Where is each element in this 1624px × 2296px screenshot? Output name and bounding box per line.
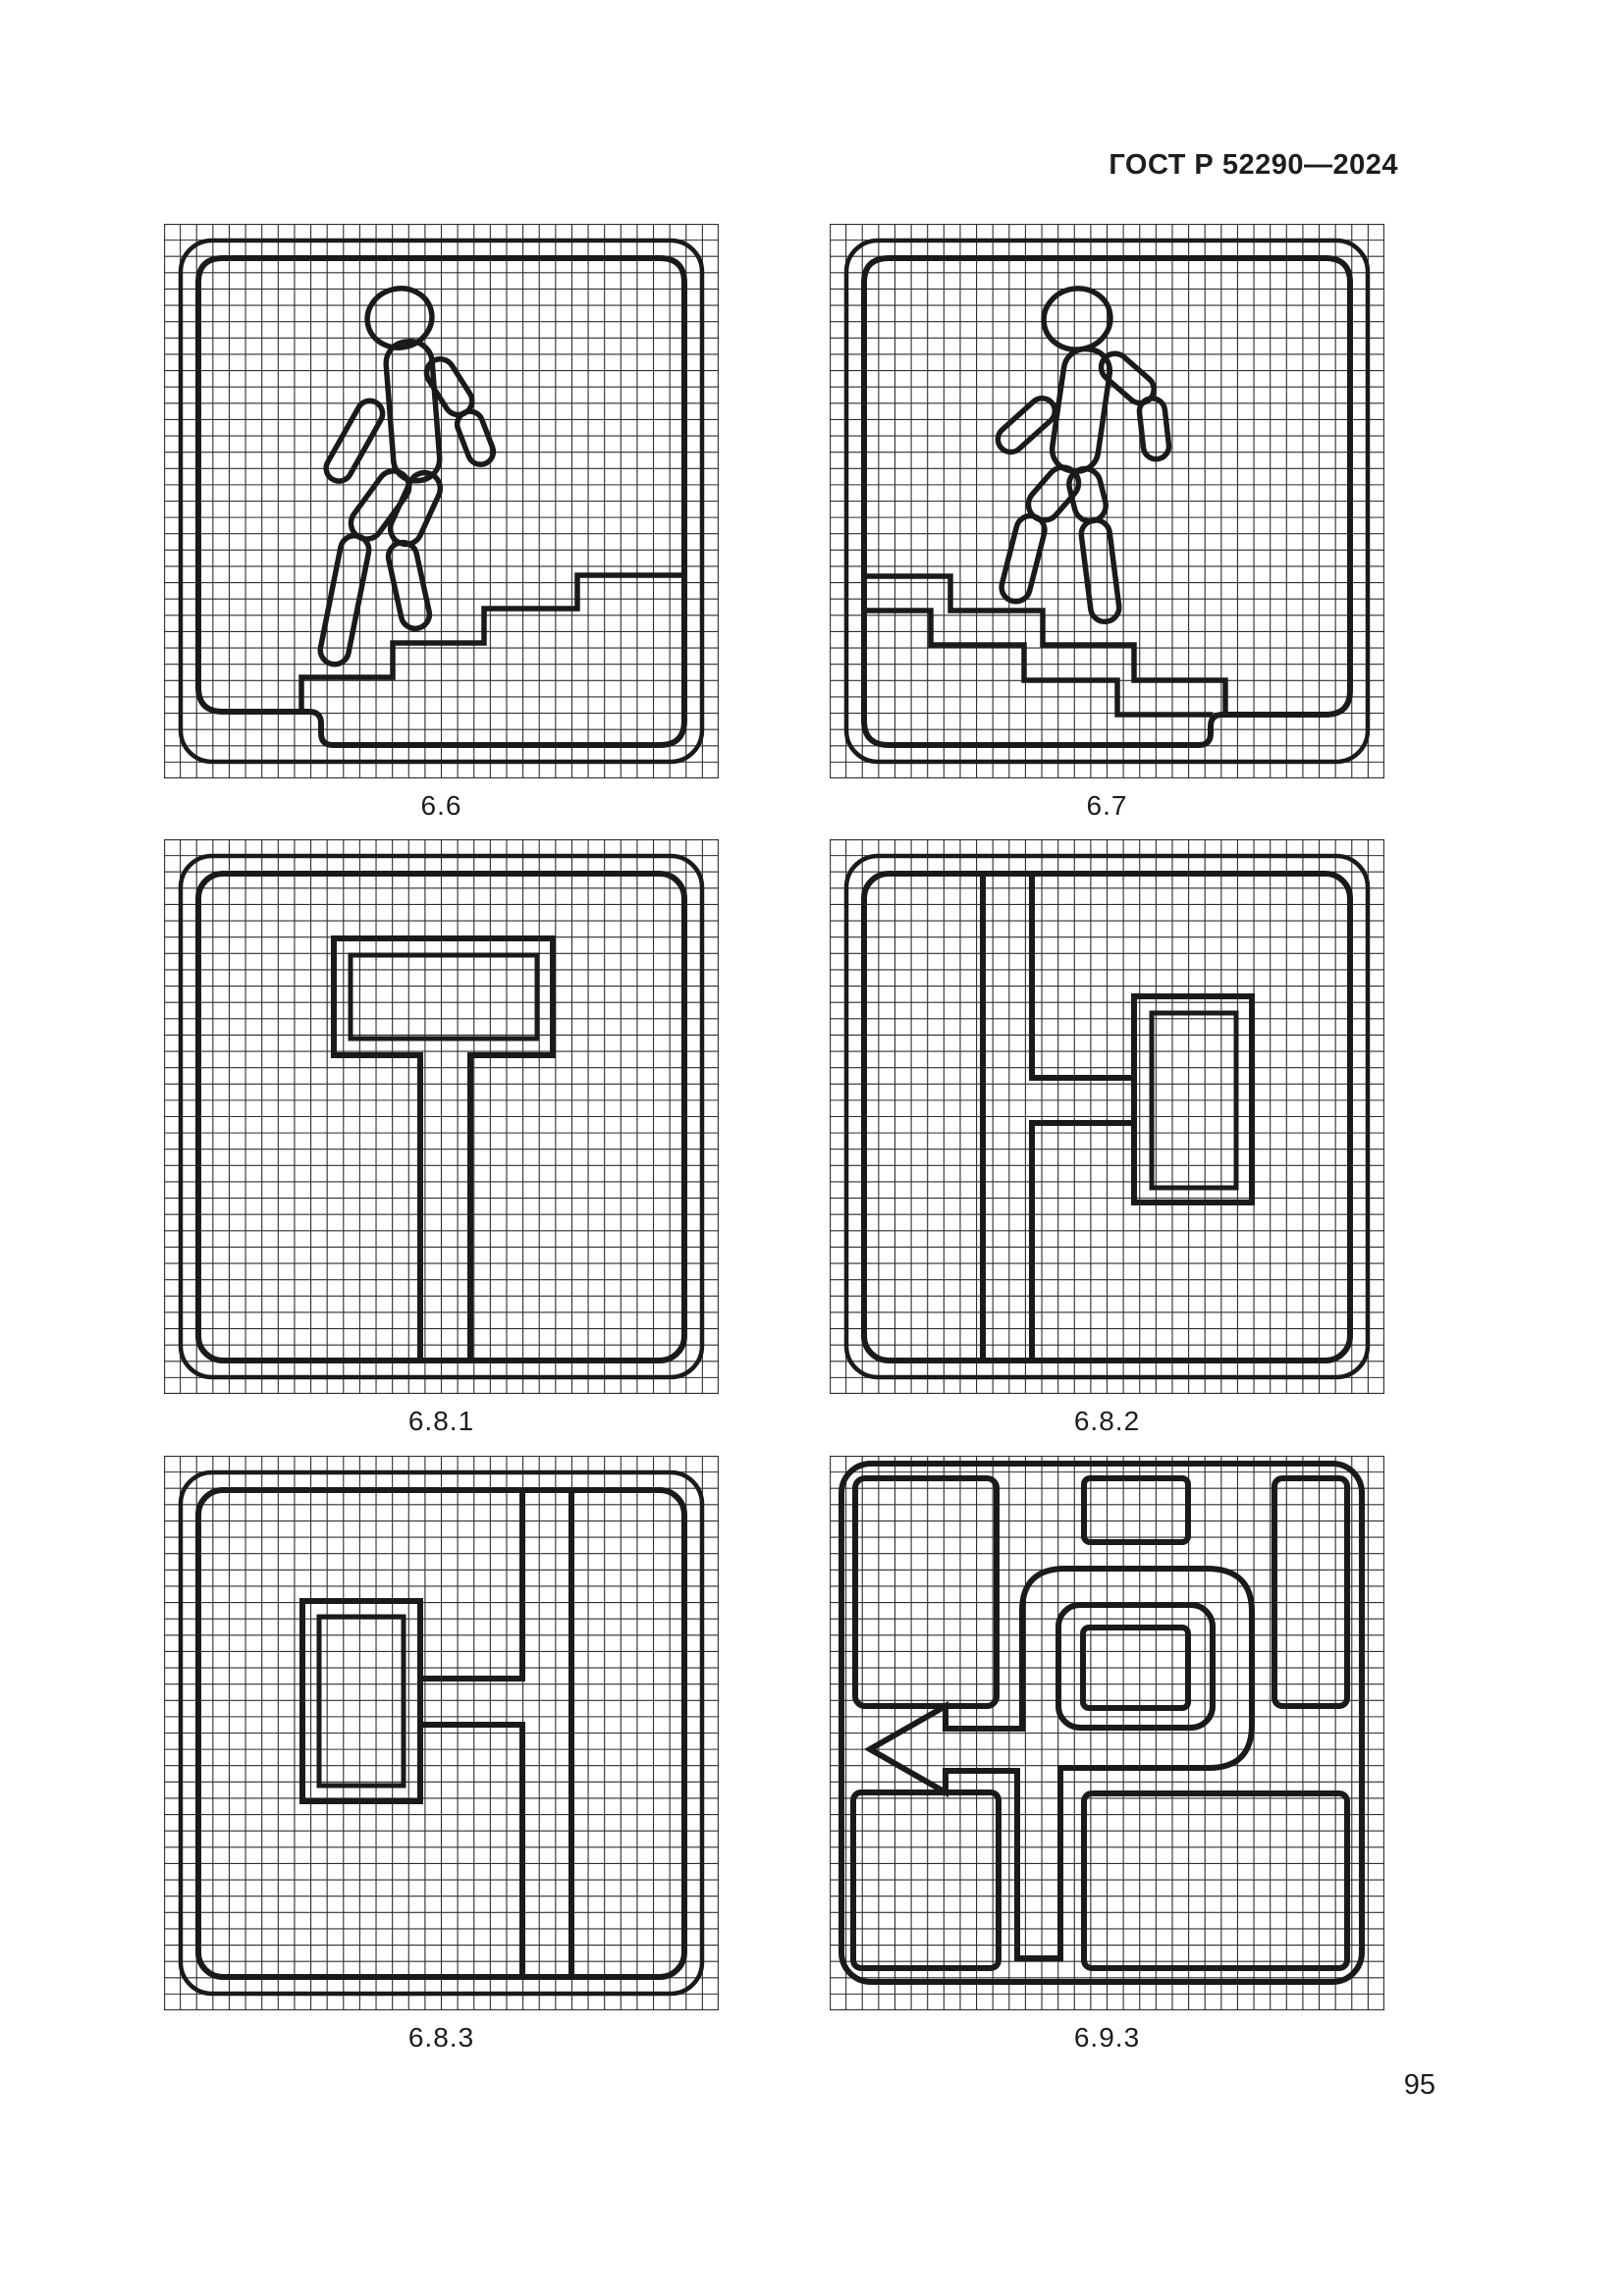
grid-layer xyxy=(830,839,1384,1394)
page-number: 95 xyxy=(1404,2069,1435,2102)
sign-6-6-diagram xyxy=(164,224,719,778)
figure-6-9-3: 6.9.3 xyxy=(830,1456,1384,2054)
grid-layer xyxy=(164,839,719,1394)
standard-number-header: ГОСТ Р 52290—2024 xyxy=(1109,149,1398,182)
grid-layer xyxy=(830,1456,1384,2010)
figure-6-8-2: 6.8.2 xyxy=(830,839,1384,1437)
pedestrian-descending-stairs-icon xyxy=(318,283,497,667)
sign-6-8-2-diagram xyxy=(830,839,1384,1394)
sign-6-7-diagram xyxy=(830,224,1384,778)
figure-caption: 6.6 xyxy=(164,790,719,822)
pedestrian-ascending-stairs-icon xyxy=(993,284,1170,623)
figure-6-7: 6.7 xyxy=(830,224,1384,822)
sign-6-8-3-diagram xyxy=(164,1456,719,2010)
grid-layer xyxy=(164,1456,719,2010)
grid-layer xyxy=(164,224,719,778)
sign-6-8-1-diagram xyxy=(164,839,719,1394)
figure-6-6: 6.6 xyxy=(164,224,719,822)
sign-6-9-3-diagram xyxy=(830,1456,1384,2010)
figure-caption: 6.8.1 xyxy=(164,1406,719,1437)
figure-caption: 6.8.2 xyxy=(830,1406,1384,1437)
stairs-up-icon xyxy=(862,576,1225,717)
figure-6-8-3: 6.8.3 xyxy=(164,1456,719,2054)
figure-caption: 6.8.3 xyxy=(164,2022,719,2054)
figure-6-8-1: 6.8.1 xyxy=(164,839,719,1437)
figure-caption: 6.7 xyxy=(830,790,1384,822)
figure-caption: 6.9.3 xyxy=(830,2022,1384,2054)
document-page: ГОСТ Р 52290—2024 6.6 xyxy=(0,0,1624,2296)
